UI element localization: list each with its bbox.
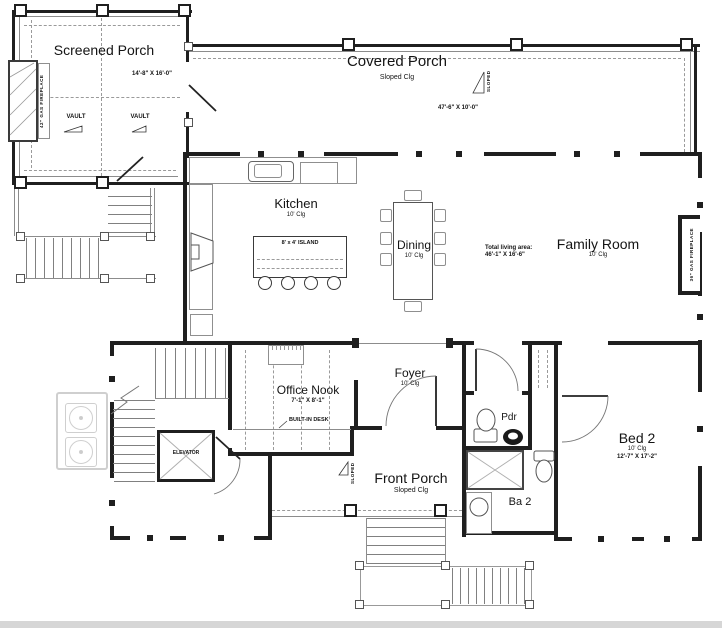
foyer-clg: 10' Clg [401, 381, 420, 387]
linework-overlay [0, 0, 722, 628]
island-label: 8' x 4' ISLAND [282, 240, 319, 246]
elevator-label: ELEVATOR [173, 450, 199, 456]
office-nook-dims: 7'-1" X 8'-1" [291, 398, 324, 404]
family-room-clg: 10' Clg [589, 252, 608, 258]
fireplace-hatch [10, 63, 36, 135]
toilet-bowl [477, 409, 495, 431]
front-porch-clg: Sloped Clg [394, 487, 428, 494]
kitchen-label: Kitchen [274, 196, 317, 211]
screened-porch-label: Screened Porch [54, 42, 154, 58]
total-living-area-dims: 46'-1" X 16'-6" [485, 252, 525, 258]
family-room-label: Family Room [557, 236, 639, 252]
bed2-dims: 12'-7" X 17'-2" [617, 454, 657, 460]
sloped-label: SLOPED [486, 68, 491, 94]
screened-porch-dims: 14'-8" X 16'-0" [132, 71, 172, 77]
bath-sink [470, 498, 488, 516]
bed2-clg: 10' Clg [628, 446, 647, 452]
door-leaf [117, 157, 143, 181]
covered-porch-clg: Sloped Clg [380, 74, 414, 81]
toilet-bowl [536, 460, 552, 482]
door-swing-arc [476, 349, 518, 391]
built-in-desk-label: BUILT-IN DESK [289, 417, 329, 423]
range-body [191, 245, 199, 259]
sloped-triangle-icon [339, 462, 348, 475]
bed2-label: Bed 2 [619, 430, 656, 446]
desk-leader-line [279, 421, 287, 428]
covered-porch-dims: 47'-6" X 10'-0" [438, 105, 478, 111]
covered-porch-label: Covered Porch [347, 53, 447, 70]
kitchen-clg: 10' Clg [287, 212, 306, 218]
floor-plan: 42" GAS FIREPLACE Screened Porch 14'-8" … [0, 0, 722, 628]
vault-triangle-icon [64, 126, 82, 132]
ba2-label: Ba 2 [509, 496, 532, 508]
pdr-label: Pdr [501, 412, 517, 423]
door-leaf [189, 85, 216, 111]
door-leaf [216, 437, 240, 459]
stair-break-line [111, 386, 139, 414]
sloped-triangle-icon [473, 72, 484, 93]
fireplace-42-label: 42" GAS FIREPLACE [39, 64, 44, 138]
foyer-label: Foyer [395, 366, 426, 380]
door-swing-arc [562, 396, 608, 442]
powder-sink-basin [508, 433, 518, 440]
elevator-x [160, 433, 212, 479]
sloped-label: SLOPED [350, 461, 355, 485]
front-porch-label: Front Porch [374, 470, 447, 486]
dining-clg: 10' Clg [405, 253, 424, 259]
total-living-area-label: Total living area: [485, 245, 532, 251]
vault-triangle-icon [132, 126, 146, 132]
office-nook-label: Office Nook [277, 383, 339, 397]
shower-x [468, 452, 522, 488]
door-swing-arc [214, 459, 240, 494]
vault-label: VAULT [66, 114, 85, 120]
dining-label: Dining [397, 238, 431, 252]
vault-label: VAULT [130, 114, 149, 120]
